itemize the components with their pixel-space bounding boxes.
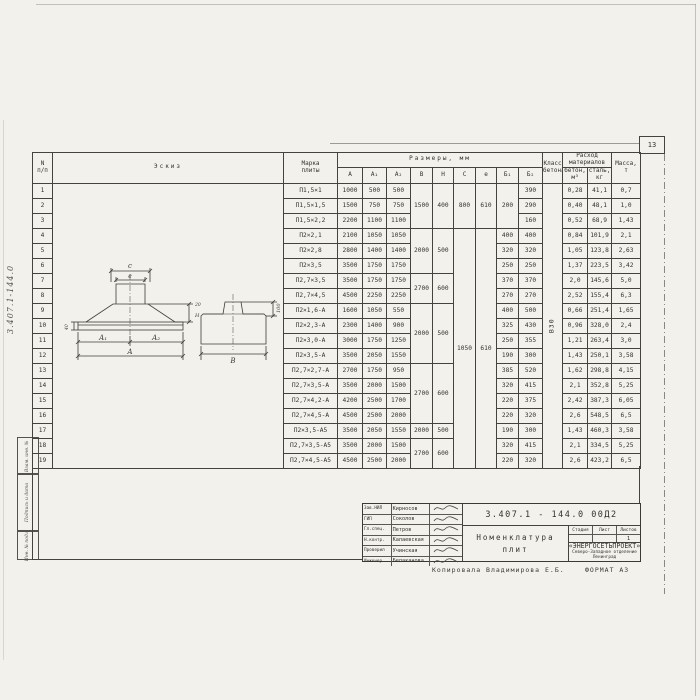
signature-name: Белаканова (392, 557, 430, 567)
cell-steel: 250,1 (588, 348, 612, 363)
cell-a2: 550 (387, 303, 411, 318)
cell-conc: 0,40 (563, 198, 588, 213)
cell-mark: П2,7×3,5 (284, 273, 338, 288)
stage-col-list: Лист (593, 526, 617, 535)
copied-by-note: Копировала Владимирова Е.Б. (432, 566, 565, 574)
dim-label-a: А (126, 348, 132, 356)
signature-squiggle (430, 546, 462, 556)
cell-b2: 320 (519, 408, 543, 423)
concrete-class-label: В30 (549, 318, 556, 333)
signature-grid: Зав.НИЛКирносовГИПСоколовГл.спец.ПетровН… (363, 504, 463, 561)
cell-a: 4500 (338, 288, 363, 303)
cell-a: 3500 (338, 258, 363, 273)
cell-c: 1050 (454, 228, 476, 468)
cell-a2: 2250 (387, 288, 411, 303)
cell-b1: 320 (497, 378, 519, 393)
cell-b1: 400 (497, 228, 519, 243)
cell-a: 1500 (338, 198, 363, 213)
cell-steel: 155,4 (588, 288, 612, 303)
header-consumption-l2: материалов (569, 159, 605, 166)
signature-name: Петров (392, 525, 430, 535)
cell-steel: 328,0 (588, 318, 612, 333)
cell-a: 4500 (338, 453, 363, 468)
cell-a1: 2050 (363, 423, 387, 438)
cell-a2: 750 (387, 198, 411, 213)
cell-steel: 334,5 (588, 438, 612, 453)
frame-left-line (32, 466, 33, 560)
cell-a: 3000 (338, 333, 363, 348)
cell-h: 600 (433, 273, 454, 303)
cell-b: 2700 (411, 273, 433, 303)
cell-a: 4500 (338, 408, 363, 423)
drawing-title: Номенклатура плит (463, 526, 569, 561)
dim-label-a1: А₁ (98, 334, 107, 342)
cell-a1: 2050 (363, 348, 387, 363)
cell-a2: 1500 (387, 378, 411, 393)
cell-b1: 250 (497, 333, 519, 348)
header-steel: сталь, кг (588, 167, 612, 183)
cell-e: 610 (476, 228, 497, 468)
cell-mark: П1,5×1 (284, 183, 338, 198)
cell-mass: 5,0 (612, 273, 641, 288)
cell-b1: 220 (497, 408, 519, 423)
stamp-label: Инв. № подл. (26, 529, 31, 560)
cell-b2: 500 (519, 303, 543, 318)
cell-a: 3500 (338, 273, 363, 288)
cell-n: 16 (33, 408, 53, 423)
cell-b2: 415 (519, 438, 543, 453)
cell-a1: 750 (363, 198, 387, 213)
cell-mark: П2×2,1 (284, 228, 338, 243)
cell-n: 17 (33, 423, 53, 438)
cell-n: 12 (33, 348, 53, 363)
dim-label-b: В (229, 357, 235, 365)
document-number: 3.407.1 - 144.0 00Д2 (463, 504, 640, 526)
cell-b1: 320 (497, 438, 519, 453)
cell-b2: 430 (519, 318, 543, 333)
cell-b2: 520 (519, 363, 543, 378)
cell-steel: 460,3 (588, 423, 612, 438)
cell-b: 2000 (411, 228, 433, 273)
stage-header-row: Стадия Лист Листов (569, 526, 640, 535)
cell-conc: 1,62 (563, 363, 588, 378)
cell-steel: 423,2 (588, 453, 612, 468)
cell-mass: 5,25 (612, 438, 641, 453)
cell-b2: 250 (519, 258, 543, 273)
cell-mass: 6,05 (612, 393, 641, 408)
header-dim-a2: А₂ (387, 167, 411, 183)
cell-a2: 1100 (387, 213, 411, 228)
stage-value-stadia (569, 535, 593, 542)
cell-a2: 1750 (387, 273, 411, 288)
cell-steel: 68,9 (588, 213, 612, 228)
sketch-drawing: c e А₁ А₂ А В Н 20 40 100 (53, 184, 282, 467)
cell-a1: 1050 (363, 303, 387, 318)
cell-a1: 1750 (363, 333, 387, 348)
frame-top-line (330, 143, 640, 144)
cell-b: 2000 (411, 423, 433, 438)
stage-value-listov: 1 (617, 535, 640, 542)
header-dim-c: С (454, 167, 476, 183)
frame-right-line (639, 466, 640, 504)
cell-mark: П2×3,5-А5 (284, 423, 338, 438)
cell-mark: П2×3,5-А (284, 348, 338, 363)
cell-n: 8 (33, 288, 53, 303)
signature-squiggle (430, 525, 462, 535)
cell-conc: 1,05 (563, 243, 588, 258)
cell-mass: 6,5 (612, 453, 641, 468)
header-cls-l2: бетона (543, 167, 563, 174)
cell-steel: 263,4 (588, 333, 612, 348)
cell-h: 600 (433, 363, 454, 423)
signature-name: Калаевская (392, 536, 430, 546)
cell-mark: П2×2,8 (284, 243, 338, 258)
stage-value-list (593, 535, 617, 542)
header-mass-l2: т (624, 167, 628, 174)
stage-col-stadia: Стадия (569, 526, 593, 535)
dim-label-boss-height: 100 (276, 303, 282, 313)
header-dim-b1: Б₁ (497, 167, 519, 183)
cell-cls: В30 (543, 183, 563, 468)
table-header: N п/п Эскиз Марка плиты Размеры, мм Клас… (33, 153, 641, 184)
cell-a1: 1400 (363, 318, 387, 333)
cell-b2: 300 (519, 423, 543, 438)
signature-role: Инженер (363, 557, 392, 567)
cell-b1: 325 (497, 318, 519, 333)
drawing-title-l1: Номенклатура (476, 532, 554, 543)
cell-a2: 1050 (387, 228, 411, 243)
cell-mass: 0,7 (612, 183, 641, 198)
cell-mark: П2,7×4,5-А (284, 408, 338, 423)
cell-mass: 6,3 (612, 288, 641, 303)
cell-b: 2000 (411, 303, 433, 363)
cell-a1: 2500 (363, 393, 387, 408)
dim-label-lip: 20 (194, 302, 201, 308)
cell-b1: 200 (497, 183, 519, 228)
cell-b1: 250 (497, 258, 519, 273)
signature-row: Зав.НИЛКирносов (363, 504, 462, 515)
signature-row: ГИПСоколов (363, 515, 462, 526)
organization-city: Ленинград (593, 556, 616, 561)
cell-steel: 48,1 (588, 198, 612, 213)
trim-dash-dot-line (664, 140, 665, 594)
cell-a2: 1750 (387, 258, 411, 273)
cell-a: 2700 (338, 363, 363, 378)
cell-mass: 1,43 (612, 213, 641, 228)
cell-b2: 355 (519, 333, 543, 348)
cell-b1: 270 (497, 288, 519, 303)
title-block: Зав.НИЛКирносовГИПСоколовГл.спец.ПетровН… (362, 503, 641, 562)
cell-b2: 300 (519, 348, 543, 363)
photo-edge-left (3, 120, 4, 660)
cell-mark: П2,7×3,5-А5 (284, 438, 338, 453)
cell-conc: 0,96 (563, 318, 588, 333)
drawing-sheet: { "page_number": "13", "margin": { "doc_… (0, 0, 700, 700)
cell-conc: 1,21 (563, 333, 588, 348)
cell-n: 15 (33, 393, 53, 408)
nomenclature-table: N п/п Эскиз Марка плиты Размеры, мм Клас… (32, 152, 641, 469)
cell-h: 400 (433, 183, 454, 228)
cell-a: 2300 (338, 318, 363, 333)
cell-a2: 2000 (387, 453, 411, 468)
photo-edge-top (36, 4, 696, 5)
cell-a: 1600 (338, 303, 363, 318)
signature-row: Гл.спец.Петров (363, 525, 462, 536)
stamp-label: Взам. инв. № (26, 440, 31, 471)
cell-a2: 1700 (387, 393, 411, 408)
cell-h: 600 (433, 438, 454, 468)
cell-steel: 352,8 (588, 378, 612, 393)
cell-b2: 375 (519, 393, 543, 408)
cell-conc: 0,66 (563, 303, 588, 318)
cell-mass: 2,1 (612, 228, 641, 243)
cell-n: 3 (33, 213, 53, 228)
header-dim-a1: А₁ (363, 167, 387, 183)
cell-a2: 1400 (387, 243, 411, 258)
table-body: 1 (33, 183, 641, 468)
cell-conc: 0,52 (563, 213, 588, 228)
cell-a: 2200 (338, 213, 363, 228)
page-number: 13 (648, 141, 656, 149)
cell-b1: 190 (497, 348, 519, 363)
cell-e: 610 (476, 183, 497, 228)
cell-mark: П2,7×4,5-А5 (284, 453, 338, 468)
pedestal-boss (116, 284, 145, 304)
signature-name: Соколов (392, 515, 430, 525)
signature-squiggle (430, 557, 462, 567)
cell-a: 4200 (338, 393, 363, 408)
cell-conc: 1,43 (563, 348, 588, 363)
cell-a1: 1750 (363, 273, 387, 288)
cell-b: 1500 (411, 183, 433, 228)
cell-b: 2700 (411, 363, 433, 423)
cell-a1: 500 (363, 183, 387, 198)
cell-b2: 270 (519, 288, 543, 303)
cell-b2: 160 (519, 213, 543, 228)
drawing-title-l2: плит (502, 544, 528, 555)
signature-role: ГИП (363, 515, 392, 525)
cell-mass: 4,15 (612, 363, 641, 378)
cell-b2: 390 (519, 183, 543, 198)
cell-mark: П2,7×3,5-А (284, 378, 338, 393)
cell-a2: 1500 (387, 438, 411, 453)
cell-a1: 1400 (363, 243, 387, 258)
cell-a: 1000 (338, 183, 363, 198)
cell-mass: 2,63 (612, 243, 641, 258)
header-mark-l2: плиты (301, 167, 319, 174)
cell-mass: 3,0 (612, 333, 641, 348)
cell-a1: 1750 (363, 258, 387, 273)
cell-a: 2100 (338, 228, 363, 243)
cell-n: 10 (33, 318, 53, 333)
signature-squiggle (430, 515, 462, 525)
cell-b1: 385 (497, 363, 519, 378)
header-dim-e: е (476, 167, 497, 183)
cell-mass: 1,0 (612, 198, 641, 213)
cell-b1: 220 (497, 453, 519, 468)
margin-doc-number: 3.407.1-144.0 (6, 265, 15, 334)
cell-conc: 2,0 (563, 273, 588, 288)
signature-row: Н.контр.Калаевская (363, 536, 462, 547)
cell-a1: 1050 (363, 228, 387, 243)
cell-mass: 3,58 (612, 348, 641, 363)
cell-mark: П2×1,6-А (284, 303, 338, 318)
stage-col-listov: Листов (617, 526, 640, 535)
cell-conc: 2,1 (563, 438, 588, 453)
signature-role: Н.контр. (363, 536, 392, 546)
header-dim-h: Н (433, 167, 454, 183)
frame-bottom-line (32, 559, 363, 560)
cell-a: 3500 (338, 423, 363, 438)
photo-edge-right (695, 4, 696, 696)
cell-h: 500 (433, 423, 454, 438)
cell-steel: 223,5 (588, 258, 612, 273)
signature-name: Кирносов (392, 504, 430, 514)
cell-steel: 123,8 (588, 243, 612, 258)
dim-label-e: e (128, 273, 132, 280)
stamp-label: Подпись и дата (26, 483, 31, 522)
dim-label-a2: А₂ (151, 334, 160, 342)
cell-mark: П2,7×4,2-А (284, 393, 338, 408)
page-number-box: 13 (639, 136, 665, 154)
cell-conc: 1,43 (563, 423, 588, 438)
cell-a1: 1750 (363, 363, 387, 378)
dim-label-h: Н (194, 313, 200, 319)
cell-n: 6 (33, 258, 53, 273)
cell-n: 11 (33, 333, 53, 348)
cell-a2: 500 (387, 183, 411, 198)
cell-b1: 370 (497, 273, 519, 288)
cell-a2: 950 (387, 363, 411, 378)
cell-mark: П1,5×2,2 (284, 213, 338, 228)
cell-conc: 2,42 (563, 393, 588, 408)
cell-n: 5 (33, 243, 53, 258)
header-sizes: Размеры, мм (338, 153, 543, 168)
cell-n: 2 (33, 198, 53, 213)
cell-steel: 41,1 (588, 183, 612, 198)
cell-a2: 900 (387, 318, 411, 333)
cell-n: 19 (33, 453, 53, 468)
sketch-cell: c e А₁ А₂ А В Н 20 40 100 (53, 183, 284, 468)
cell-conc: 2,6 (563, 453, 588, 468)
cell-a2: 1550 (387, 348, 411, 363)
cell-a1: 2000 (363, 438, 387, 453)
signature-role: Гл.спец. (363, 525, 392, 535)
cell-a: 2800 (338, 243, 363, 258)
header-mark: Марка плиты (284, 153, 338, 184)
cell-steel: 251,4 (588, 303, 612, 318)
cell-mark: П1,5×1,5 (284, 198, 338, 213)
cell-b1: 400 (497, 303, 519, 318)
header-consumption: Расход материалов (563, 153, 612, 168)
cell-mass: 6,5 (612, 408, 641, 423)
signature-squiggle (430, 536, 462, 546)
side-section-outline (201, 302, 266, 344)
cell-n: 7 (33, 273, 53, 288)
cell-mass: 1,65 (612, 303, 641, 318)
cell-mass: 3,58 (612, 423, 641, 438)
cell-a1: 2250 (363, 288, 387, 303)
cell-a2: 1550 (387, 423, 411, 438)
cell-b2: 400 (519, 228, 543, 243)
header-sketch: Эскиз (53, 153, 284, 184)
header-dim-b: В (411, 167, 433, 183)
cell-n: 13 (33, 363, 53, 378)
cell-b2: 370 (519, 273, 543, 288)
cell-a1: 2500 (363, 408, 387, 423)
cell-a: 3500 (338, 438, 363, 453)
cell-mass: 5,25 (612, 378, 641, 393)
cell-steel: 387,3 (588, 393, 612, 408)
header-concrete-class: Класс бетона (543, 153, 563, 184)
cell-n: 14 (33, 378, 53, 393)
stamp-box-podpis-data: Подпись и дата (17, 473, 39, 532)
header-num: N п/п (33, 153, 53, 184)
stamp-box-inv-podl: Инв. № подл. (17, 530, 39, 560)
cell-b: 2700 (411, 438, 433, 468)
cell-steel: 101,9 (588, 228, 612, 243)
signature-role: Зав.НИЛ (363, 504, 392, 514)
cell-a1: 1100 (363, 213, 387, 228)
cell-n: 9 (33, 303, 53, 318)
cell-h: 500 (433, 228, 454, 273)
cell-conc: 2,6 (563, 408, 588, 423)
signature-role: Проверил (363, 546, 392, 556)
cell-a: 3500 (338, 378, 363, 393)
cell-mark: П2×3,0-А (284, 333, 338, 348)
signature-name: Учинская (392, 546, 430, 556)
cell-a1: 2500 (363, 453, 387, 468)
cell-conc: 2,1 (563, 378, 588, 393)
cell-steel: 298,8 (588, 363, 612, 378)
cell-n: 4 (33, 228, 53, 243)
cell-b1: 190 (497, 423, 519, 438)
cell-mass: 2,4 (612, 318, 641, 333)
header-dim-a: А (338, 167, 363, 183)
pedestal-trapezoid (86, 304, 175, 322)
signature-row: ИнженерБелаканова (363, 557, 462, 567)
header-steel-l2: кг (596, 174, 603, 181)
cell-steel: 145,6 (588, 273, 612, 288)
cell-a2: 2000 (387, 408, 411, 423)
header-concrete-l2: м³ (571, 174, 578, 181)
organization-block: «ЭНЕРГОСЕТЬПРОЕКТ» Северо-Западное отдел… (569, 543, 640, 561)
cell-b1: 320 (497, 243, 519, 258)
cell-a: 3500 (338, 348, 363, 363)
cell-c: 800 (454, 183, 476, 228)
cell-conc: 1,37 (563, 258, 588, 273)
cell-b2: 290 (519, 198, 543, 213)
cell-b1: 220 (497, 393, 519, 408)
cell-n: 18 (33, 438, 53, 453)
cell-b2: 320 (519, 453, 543, 468)
signature-squiggle (430, 504, 462, 514)
table-row: 1 (33, 183, 641, 198)
cell-mark: П2,7×4,5 (284, 288, 338, 303)
header-dim-b2: Б₂ (519, 167, 543, 183)
dim-label-plate-edge: 40 (64, 324, 70, 331)
plate-base-outline (78, 322, 183, 330)
cell-b2: 415 (519, 378, 543, 393)
cell-conc: 0,28 (563, 183, 588, 198)
cell-mark: П2×3,5 (284, 258, 338, 273)
signature-row: ПроверилУчинская (363, 546, 462, 557)
header-concrete: бетон, м³ (563, 167, 588, 183)
cell-h: 500 (433, 303, 454, 363)
cell-conc: 2,52 (563, 288, 588, 303)
cell-mark: П2×2,3-А (284, 318, 338, 333)
cell-steel: 548,5 (588, 408, 612, 423)
